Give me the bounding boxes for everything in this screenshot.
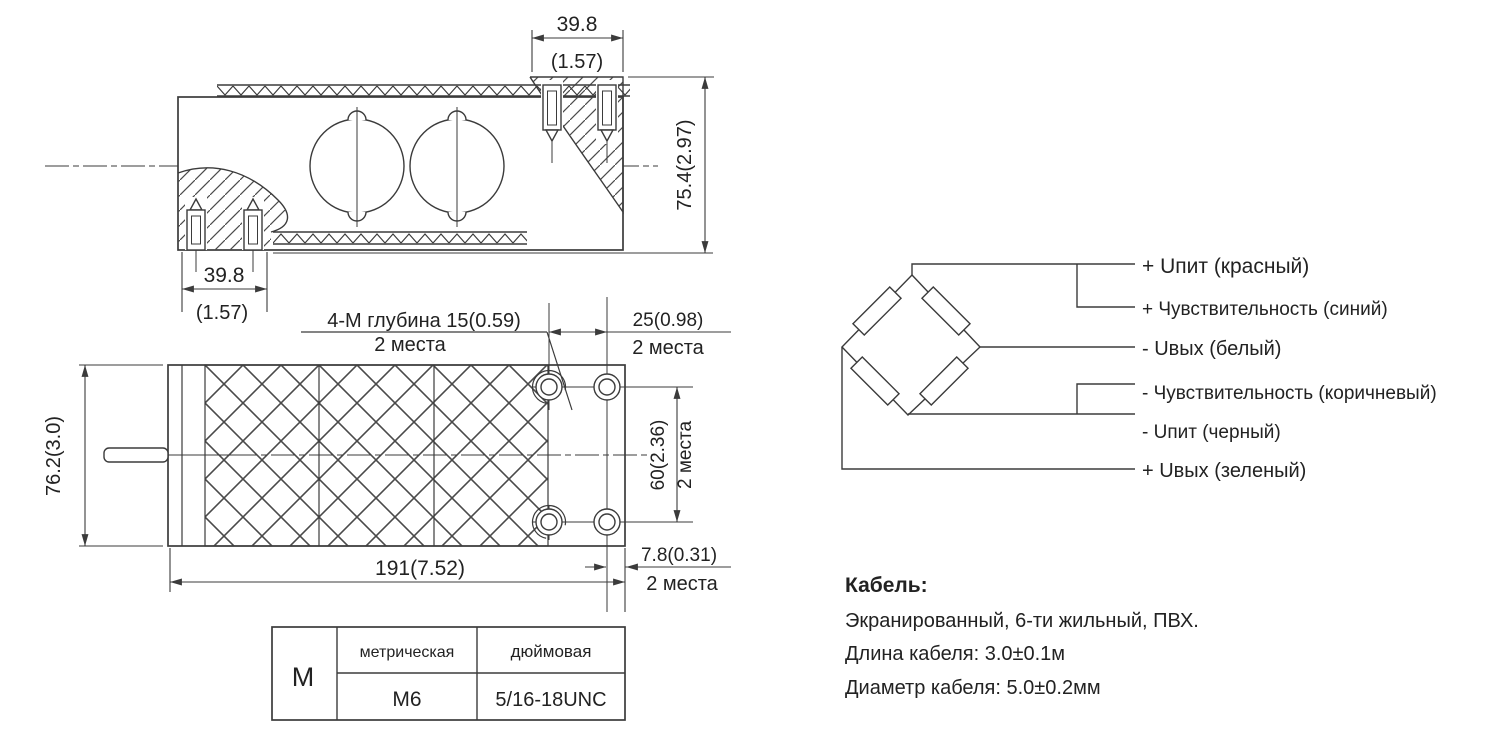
cable-title: Кабель: [845,574,928,597]
dim-side-height: 75.4(2.97) [674,119,696,210]
through-hole-bottom [594,509,620,535]
table-col-inch: дюймовая [511,642,592,661]
table-metric-value: М6 [392,688,421,711]
technical-drawing: 39.8 (1.57) 75.4(2.97) 39.8 (1.57) [0,0,1498,746]
dim-edge-offset: 7.8(0.31) [641,545,717,566]
bridge-diagram: + Uпит (красный) + Чувствительность (син… [842,255,1437,482]
dim-holes-x-qty: 2 места [632,337,704,359]
wire-label-excitation-minus: - Uпит (черный) [1142,422,1281,443]
wire-label-sense-minus: - Чувствительность (коричневый) [1142,383,1437,404]
strain-gauge-2 [920,357,968,405]
dim-width: 76.2(3.0) [43,416,65,496]
table-row-label: М [292,662,315,692]
strain-gauge-1 [922,287,970,335]
table-col-metric: метрическая [360,644,455,661]
side-view: 39.8 (1.57) 75.4(2.97) 39.8 (1.57) [45,13,714,324]
dim-bottom-width-inch: (1.57) [196,302,248,324]
strain-gauge-4 [853,287,901,335]
plan-view: 4-М глубина 15(0.59) 2 места 25(0.98) 2 … [43,297,731,612]
cable-length: Длина кабеля: 3.0±0.1м [845,643,1065,665]
wire-label-output-minus: - Uвых (белый) [1142,338,1281,360]
wire-label-sense-plus: + Чувствительность (синий) [1142,299,1388,320]
top-serrated-plate [217,85,630,96]
wire-label-excitation-plus: + Uпит (красный) [1142,255,1309,278]
bridge-diamond [842,275,980,415]
dim-bottom-width: 39.8 [204,264,245,287]
table-inch-value: 5/16-18UNC [495,689,606,711]
thread-note-qty: 2 места [374,334,446,356]
dim-edge-offset-qty: 2 места [646,573,718,595]
cable-spec: Кабель: Экранированный, 6-ти жильный, ПВ… [845,574,1199,699]
dim-top-width-inch: (1.57) [551,51,603,73]
wire-label-output-plus: + Uвых (зеленый) [1142,460,1306,482]
dim-top-width: 39.8 [557,13,598,36]
thread-note: 4-М глубина 15(0.59) [327,310,521,332]
load-cell-drawing-page: 39.8 (1.57) 75.4(2.97) 39.8 (1.57) [0,0,1498,746]
dim-holes-y: 60(2.36) [648,420,669,491]
thread-table: М метрическая дюймовая М6 5/16-18UNC [272,627,625,720]
cable-diameter: Диаметр кабеля: 5.0±0.2мм [845,677,1101,699]
dim-length: 191(7.52) [375,557,465,580]
through-hole-top [594,374,620,400]
bottom-serrated-plate [273,232,527,244]
strain-gauge-3 [851,357,899,405]
dim-holes-y-qty: 2 места [675,421,696,489]
cable-exit [104,448,168,462]
wiring-labels: + Uпит (красный) + Чувствительность (син… [1142,255,1437,482]
cable-type: Экранированный, 6-ти жильный, ПВХ. [845,610,1199,632]
dim-holes-x: 25(0.98) [633,310,704,331]
